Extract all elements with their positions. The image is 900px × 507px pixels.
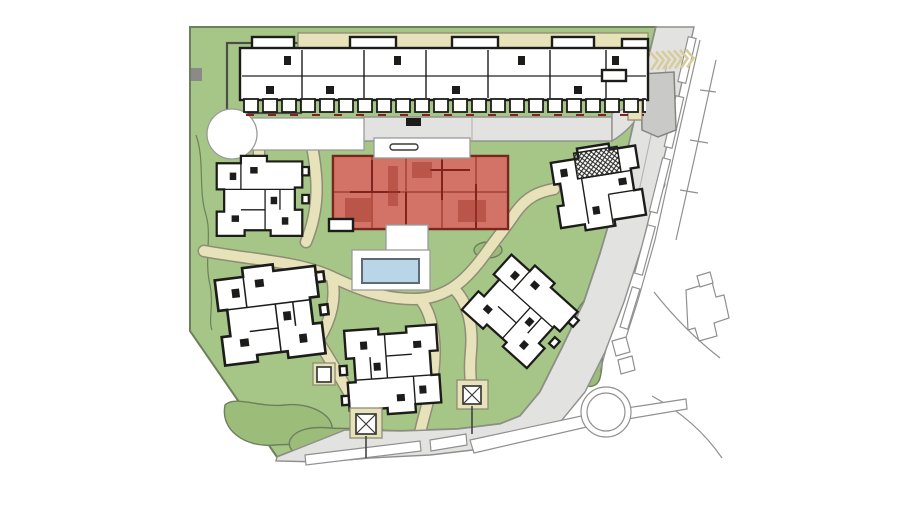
entry-canopy bbox=[406, 118, 421, 126]
stoop bbox=[329, 219, 353, 231]
utility-box bbox=[191, 68, 202, 81]
bench bbox=[390, 144, 418, 150]
central-building-highlighted[interactable] bbox=[329, 150, 508, 231]
swimming-pool bbox=[362, 259, 419, 283]
south-balcony-bays bbox=[242, 98, 646, 114]
entry-plaza bbox=[374, 138, 470, 158]
roundabout bbox=[581, 387, 631, 437]
site-plan-canvas bbox=[0, 0, 900, 507]
pavilion-junction bbox=[313, 363, 335, 385]
cul-de-sac bbox=[207, 109, 257, 159]
site-plan-drawing bbox=[0, 0, 900, 507]
west-building[interactable] bbox=[217, 156, 309, 236]
north-slab-building[interactable] bbox=[240, 37, 648, 126]
